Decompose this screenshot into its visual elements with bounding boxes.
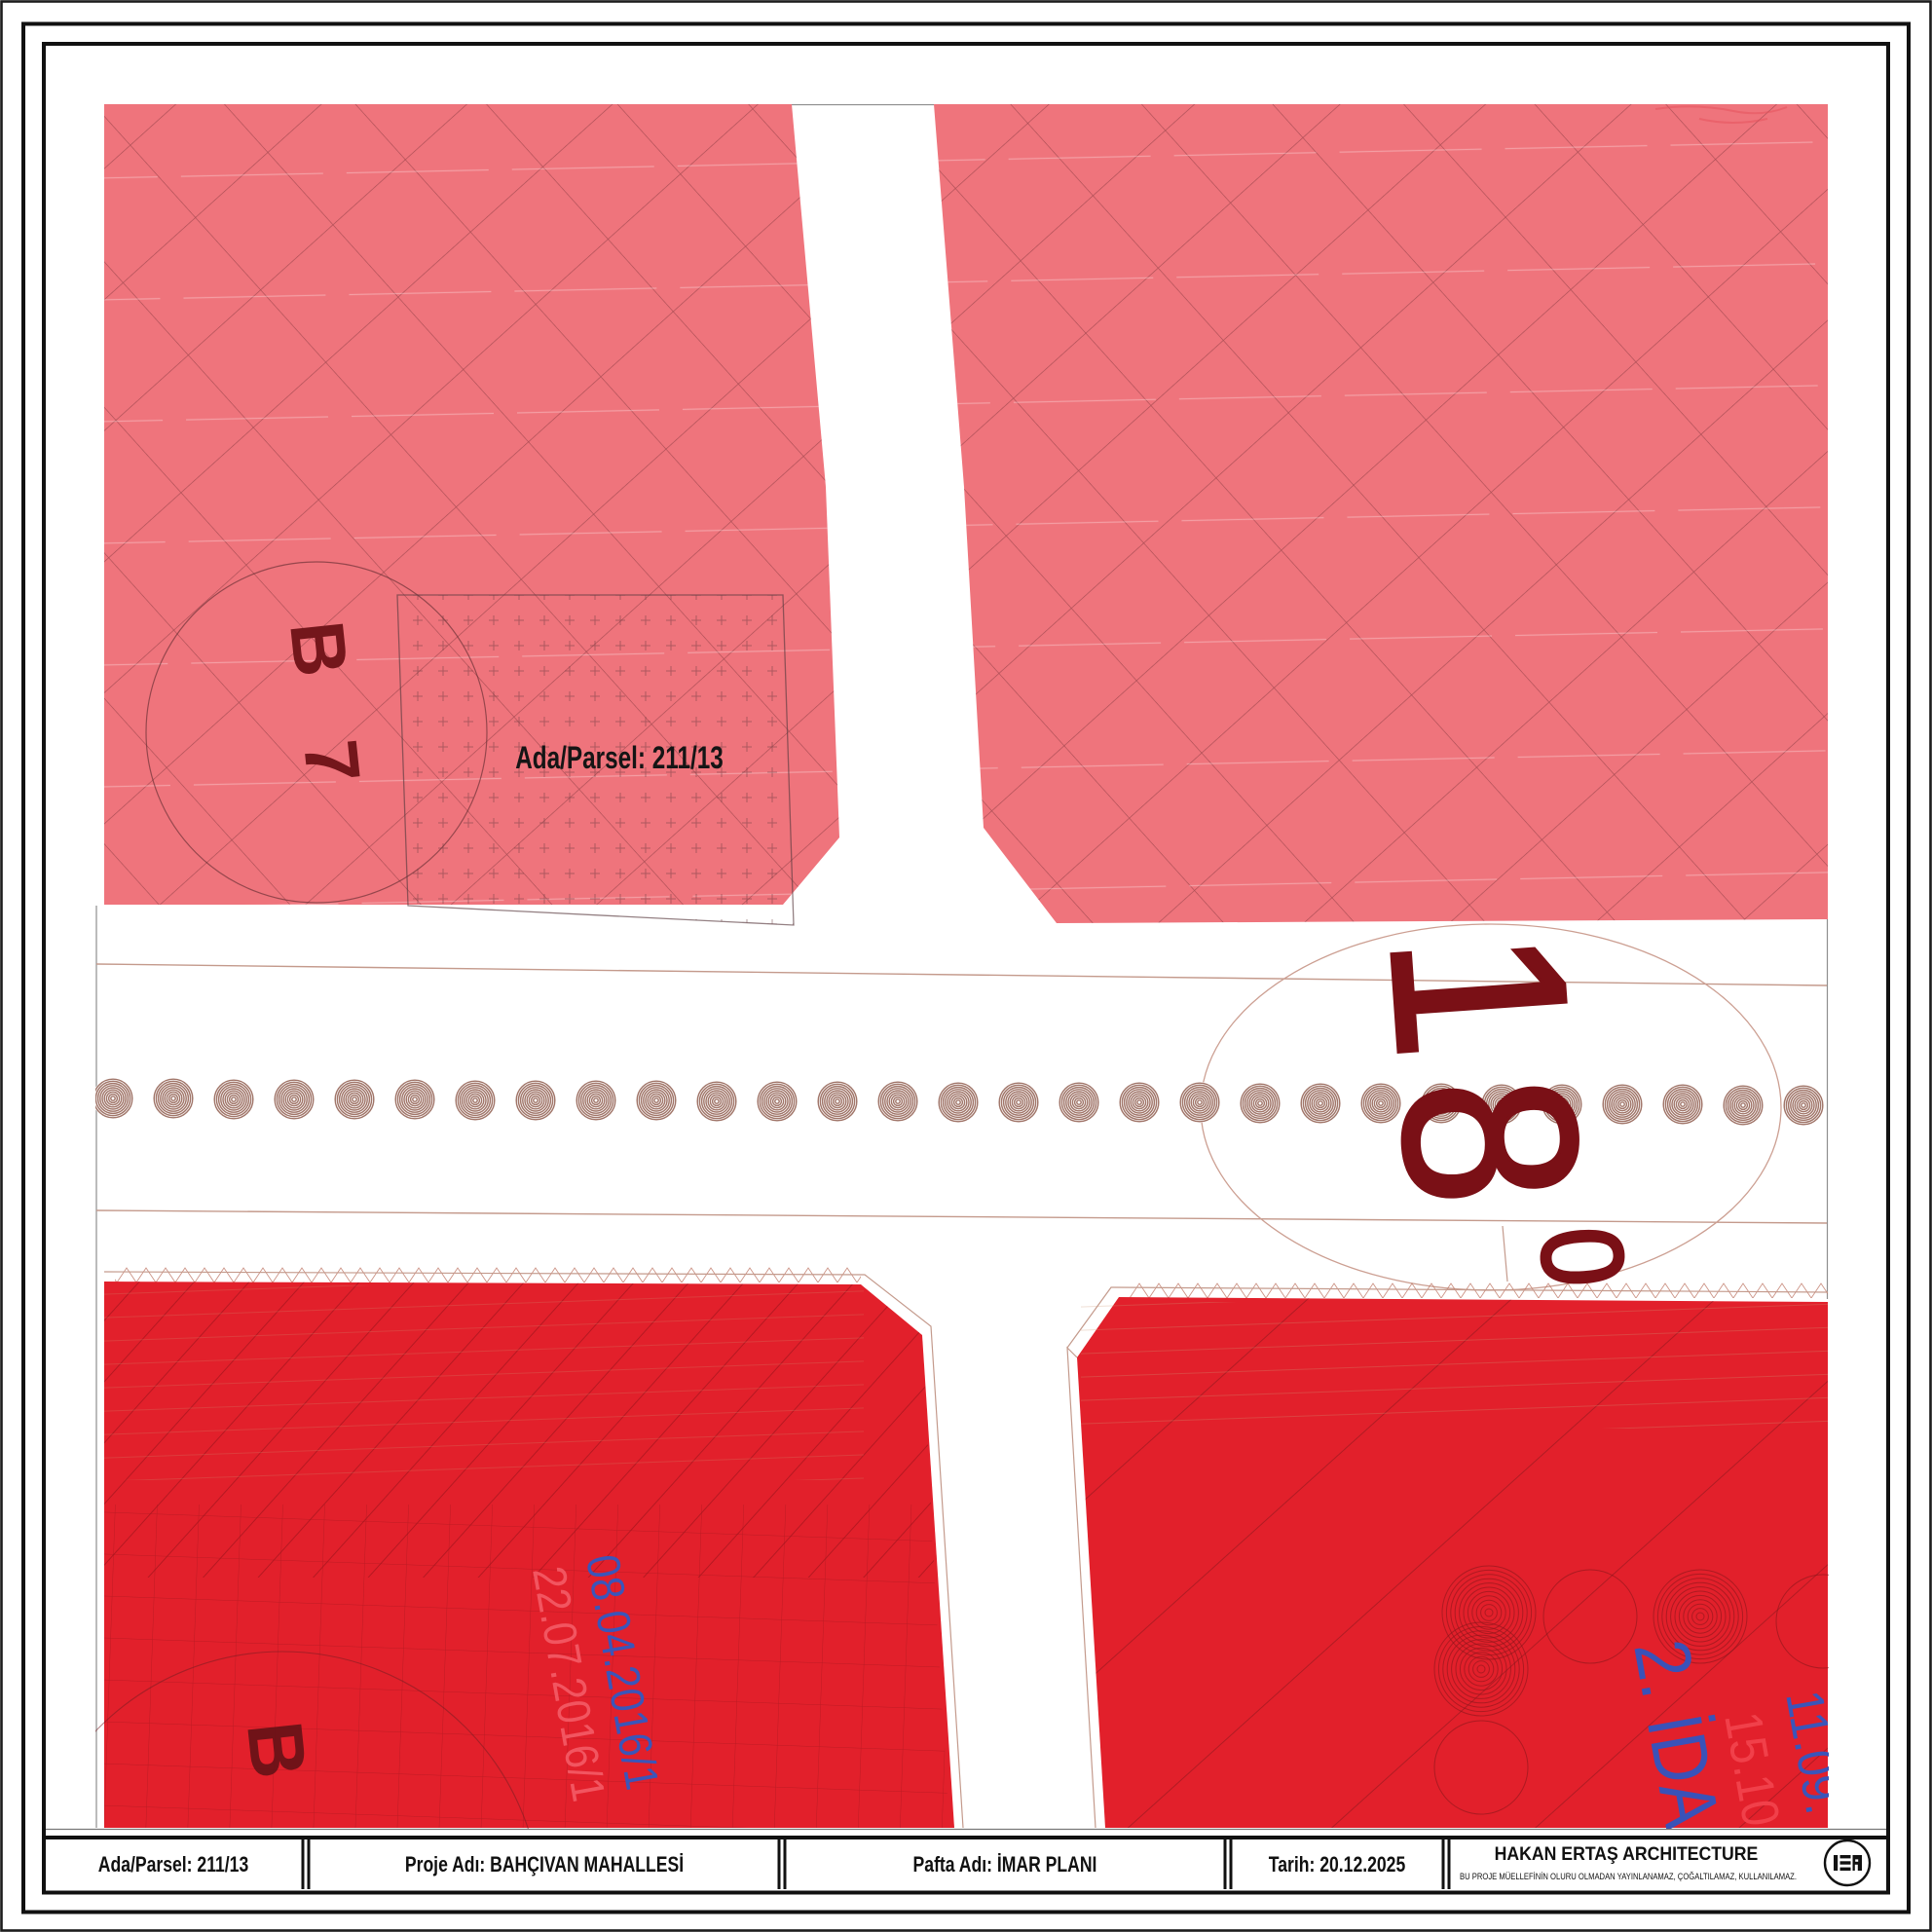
svg-text:BU PROJE MÜELLEFİNİN OLURU OLM: BU PROJE MÜELLEFİNİN OLURU OLMADAN YAYIN… (1460, 1871, 1797, 1881)
svg-text:180: 180 (1338, 920, 1650, 1321)
svg-text:B: B (274, 617, 364, 681)
svg-text:B: B (231, 1717, 323, 1782)
svg-text:Ada/Parsel: 211/13: Ada/Parsel: 211/13 (515, 741, 724, 776)
svg-text:7: 7 (287, 736, 377, 787)
svg-text:Tarih: 20.12.2025: Tarih: 20.12.2025 (1269, 1853, 1405, 1876)
svg-text:Pafta Adı: İMAR PLANI: Pafta Adı: İMAR PLANI (913, 1852, 1097, 1876)
svg-text:Proje Adı: BAHÇIVAN MAHALLESİ: Proje Adı: BAHÇIVAN MAHALLESİ (405, 1852, 684, 1876)
svg-text:Ada/Parsel: 211/13: Ada/Parsel: 211/13 (98, 1853, 248, 1876)
svg-text:HAKAN ERTAŞ ARCHITECTURE: HAKAN ERTAŞ ARCHITECTURE (1495, 1842, 1759, 1864)
